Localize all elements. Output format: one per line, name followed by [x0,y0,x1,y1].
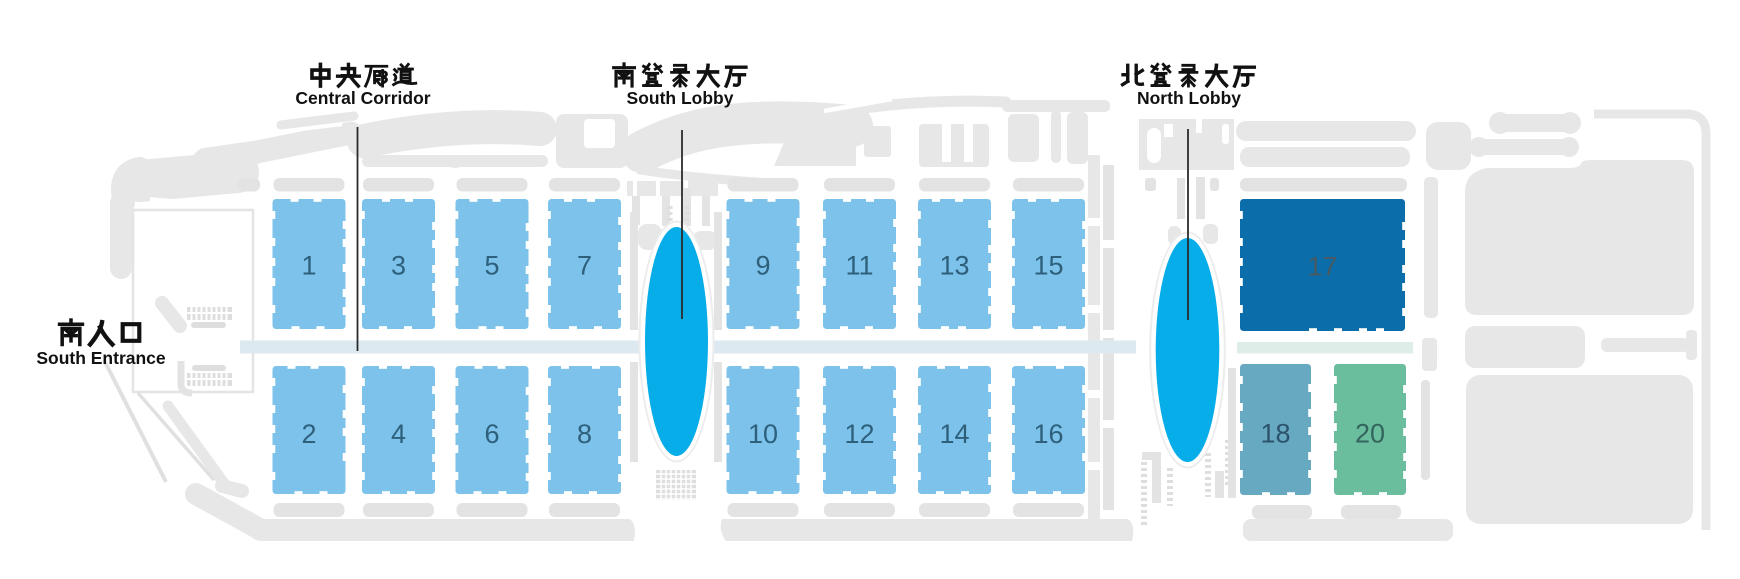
svg-text:14: 14 [939,419,969,449]
svg-text:7: 7 [577,251,592,281]
svg-text:11: 11 [845,251,873,281]
svg-text:South Lobby: South Lobby [627,88,734,108]
svg-text:6: 6 [484,419,499,449]
svg-text:1: 1 [301,251,316,281]
svg-text:3: 3 [391,251,406,281]
svg-text:20: 20 [1355,419,1385,449]
svg-text:Central Corridor: Central Corridor [295,88,430,108]
svg-text:17: 17 [1307,252,1337,282]
svg-text:18: 18 [1260,419,1290,449]
svg-text:5: 5 [484,251,499,281]
svg-text:South Entrance: South Entrance [36,348,166,368]
svg-text:12: 12 [844,419,874,449]
svg-text:North Lobby: North Lobby [1137,88,1241,108]
svg-text:4: 4 [391,419,406,449]
svg-text:16: 16 [1033,419,1063,449]
svg-text:2: 2 [301,419,316,449]
svg-text:9: 9 [755,251,770,281]
svg-text:10: 10 [748,419,778,449]
svg-text:8: 8 [577,419,592,449]
svg-text:13: 13 [939,251,969,281]
svg-text:15: 15 [1033,251,1063,281]
